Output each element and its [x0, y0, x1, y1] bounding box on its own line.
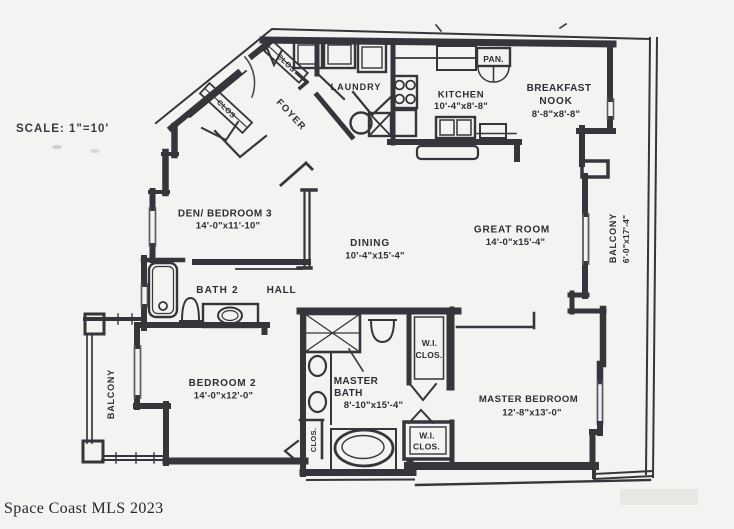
svg-text:GREAT ROOM: GREAT ROOM	[474, 225, 550, 236]
svg-text:SCALE: 1"=10': SCALE: 1"=10'	[16, 123, 109, 135]
svg-text:14'-0"x12'-0": 14'-0"x12'-0"	[194, 391, 253, 402]
svg-text:6'-0"x17'-4": 6'-0"x17'-4"	[621, 215, 631, 264]
svg-text:CLOS.: CLOS.	[416, 350, 443, 360]
svg-text:HALL: HALL	[267, 285, 297, 296]
svg-text:BALCONY: BALCONY	[106, 369, 116, 419]
svg-text:DEN/ BEDROOM 3: DEN/ BEDROOM 3	[178, 209, 272, 220]
svg-text:BREAKFAST: BREAKFAST	[527, 83, 592, 94]
svg-text:14'-0"x15'-4": 14'-0"x15'-4"	[486, 237, 545, 248]
svg-text:KITCHEN: KITCHEN	[438, 90, 484, 101]
svg-text:Space Coast MLS 2023: Space Coast MLS 2023	[4, 500, 164, 517]
svg-text:8'-8"x8'-8": 8'-8"x8'-8"	[532, 109, 580, 120]
svg-text:CLOS.: CLOS.	[309, 428, 318, 452]
svg-text:BATH: BATH	[334, 388, 363, 399]
svg-text:10'-4"x8'-8": 10'-4"x8'-8"	[434, 101, 488, 112]
svg-text:MASTER: MASTER	[334, 376, 379, 387]
svg-text:MASTER BEDROOM: MASTER BEDROOM	[479, 394, 578, 405]
svg-text:DINING: DINING	[350, 238, 390, 249]
svg-text:W.I.: W.I.	[422, 338, 437, 348]
svg-text:BEDROOM 2: BEDROOM 2	[189, 378, 257, 389]
svg-text:CLOS.: CLOS.	[413, 442, 440, 452]
svg-text:12'-8"x13'-0": 12'-8"x13'-0"	[502, 408, 561, 419]
svg-text:PAN.: PAN.	[483, 54, 503, 64]
svg-text:W.I.: W.I.	[419, 431, 434, 441]
svg-text:BATH 2: BATH 2	[196, 285, 239, 296]
svg-text:14'-0"x11'-10": 14'-0"x11'-10"	[196, 221, 260, 232]
svg-text:LAUNDRY: LAUNDRY	[331, 82, 382, 92]
svg-text:10'-4"x15'-4": 10'-4"x15'-4"	[345, 251, 404, 262]
svg-text:BALCONY: BALCONY	[608, 213, 618, 263]
svg-text:NOOK: NOOK	[539, 96, 572, 107]
svg-text:8'-10"x15'-4": 8'-10"x15'-4"	[344, 400, 403, 411]
